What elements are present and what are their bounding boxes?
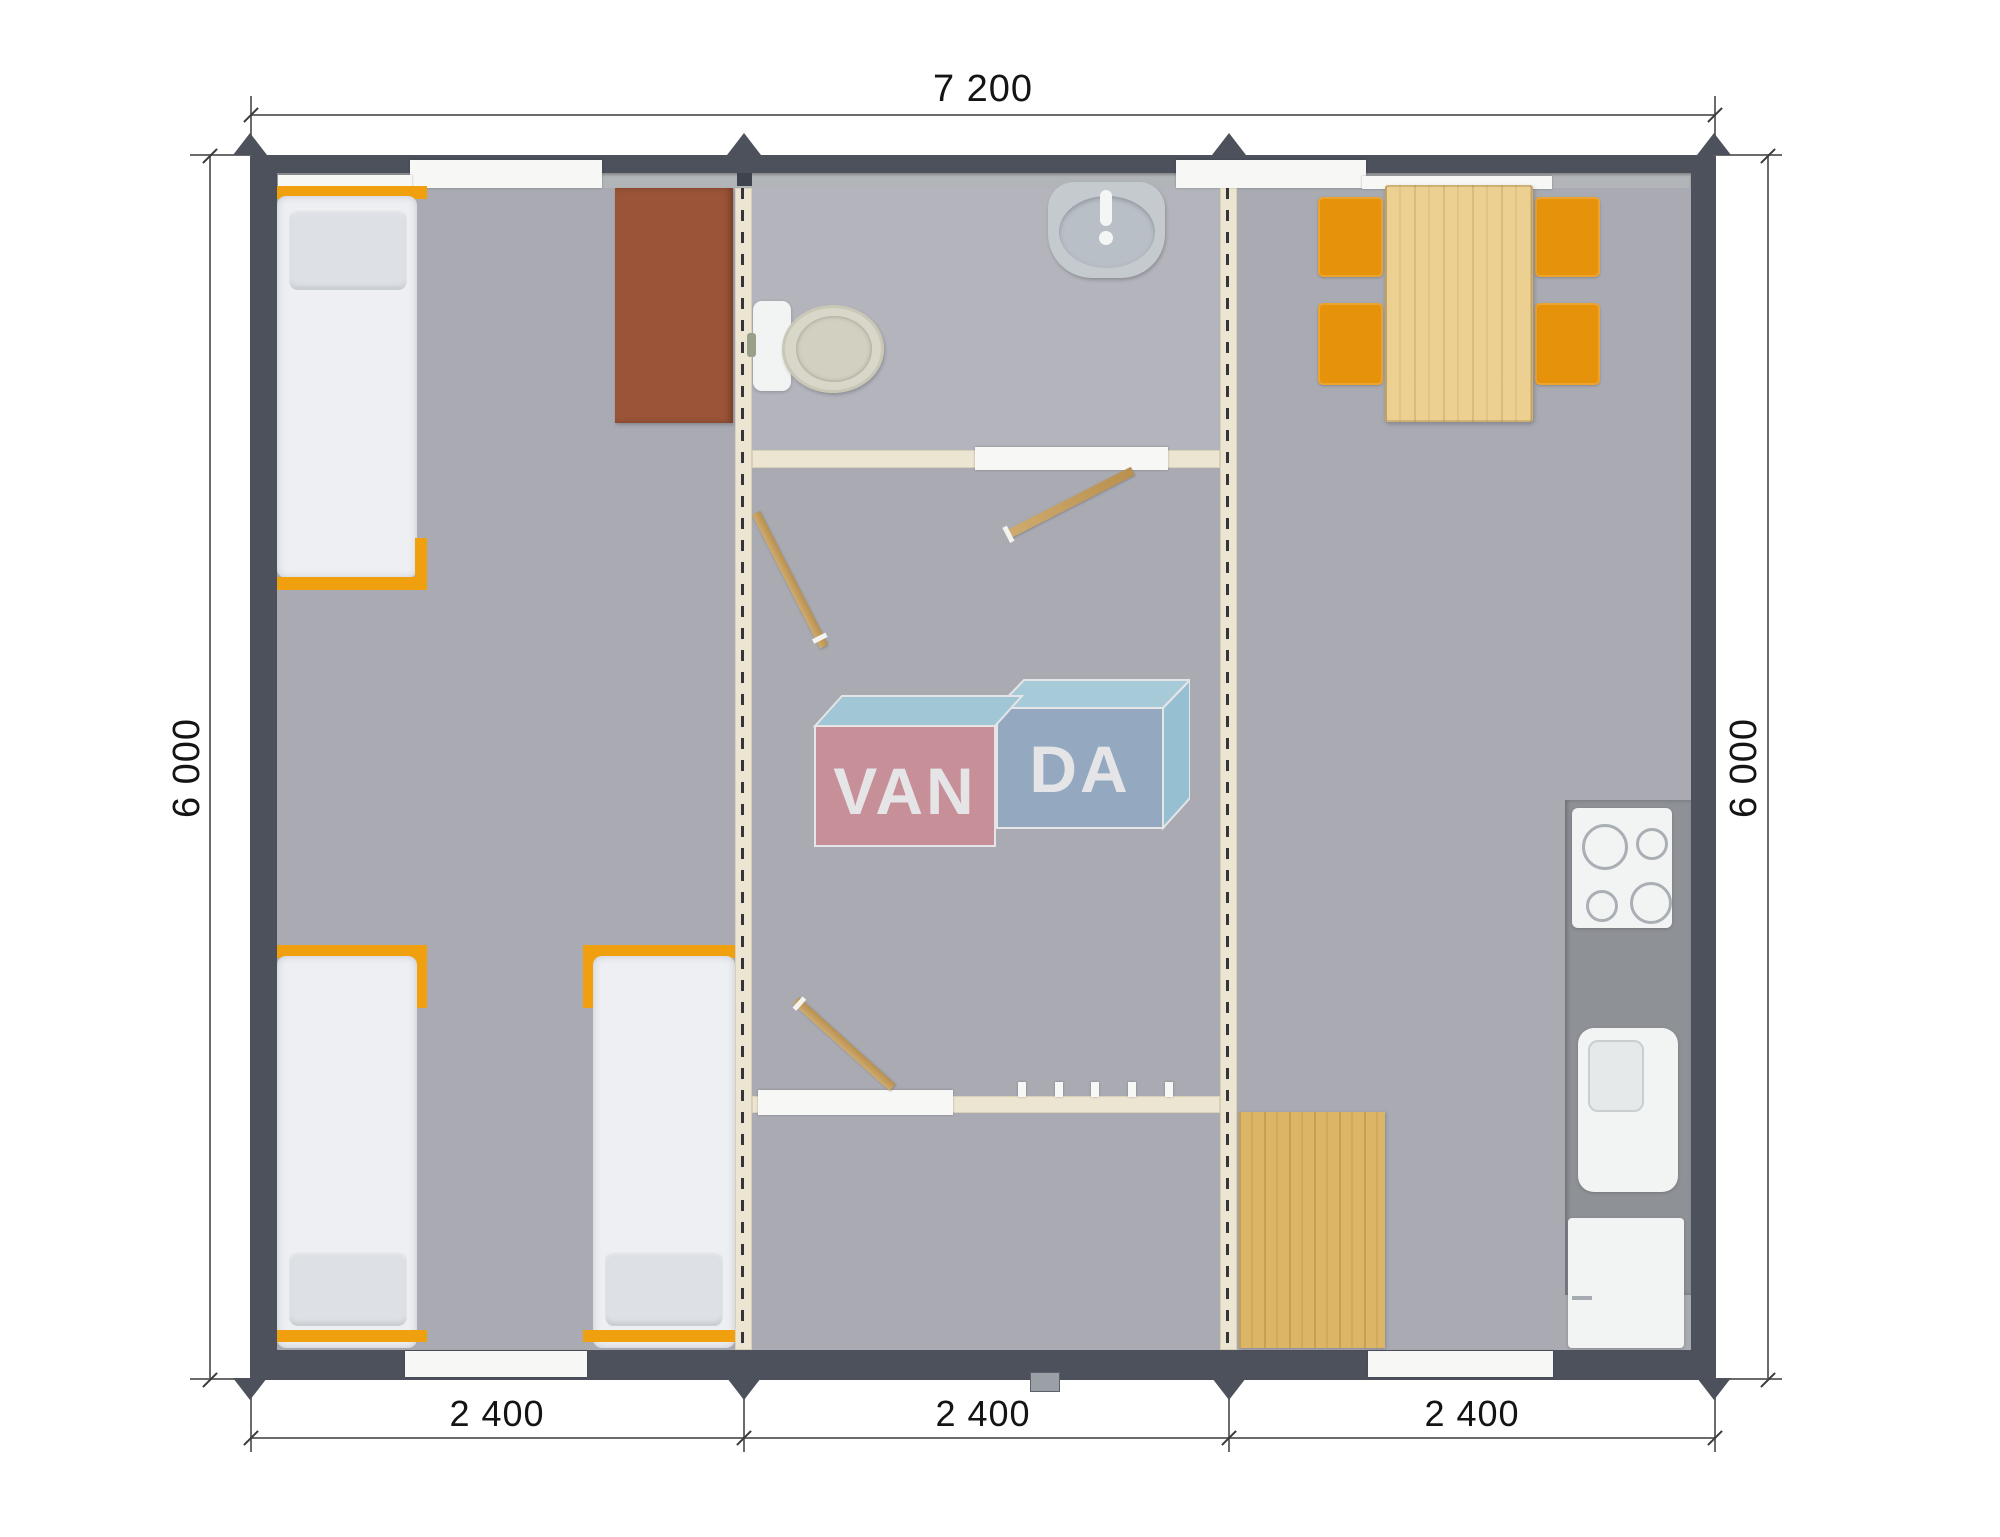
- burner: [1630, 882, 1672, 924]
- dimension-line-bottom: [250, 1437, 1716, 1439]
- vanda-logo: VAN DA: [800, 678, 1190, 873]
- coat-hook: [1128, 1082, 1136, 1097]
- door-handle: [812, 633, 828, 644]
- kitchen-sink-basin: [1588, 1040, 1644, 1112]
- dimension-label-module-2: 2 400: [883, 1396, 1083, 1432]
- joint-marker: [1212, 133, 1246, 155]
- dining-chair: [1535, 197, 1600, 277]
- dimension-label-module-1: 2 400: [397, 1396, 597, 1432]
- partition-2-door-frame: [758, 1090, 953, 1115]
- wood-floor-mat: [1239, 1112, 1385, 1348]
- dimension-line-left: [209, 154, 211, 1380]
- dimension-label-module-3: 2 400: [1372, 1396, 1572, 1432]
- module-joint-line-1: [741, 188, 744, 1350]
- joint-marker: [727, 1378, 761, 1400]
- joint-marker: [1697, 133, 1731, 155]
- fridge-handle: [1572, 1296, 1592, 1300]
- dimension-line-right: [1767, 154, 1769, 1380]
- window-bottom-left: [405, 1351, 587, 1377]
- bathroom-door-handle: [747, 333, 756, 357]
- bed-frame-side: [415, 538, 427, 580]
- joint-marker: [727, 133, 761, 155]
- toilet-seat: [796, 316, 872, 382]
- joint-marker: [1697, 1378, 1731, 1400]
- window-bottom-right: [1368, 1351, 1553, 1377]
- burner: [1582, 824, 1628, 870]
- joint-tab: [737, 173, 752, 186]
- vanda-logo-graphic: VAN DA: [800, 678, 1190, 873]
- dining-chair: [1318, 303, 1383, 385]
- dining-chair: [1318, 197, 1383, 277]
- bed-2-pillow: [289, 1250, 407, 1326]
- coat-hook: [1091, 1082, 1099, 1097]
- faucet: [1100, 190, 1112, 226]
- bed-frame-foot: [277, 577, 427, 590]
- logo-box-left-top-face: [815, 696, 1022, 726]
- desk: [615, 188, 733, 423]
- burner: [1586, 890, 1618, 922]
- joint-marker: [233, 1378, 267, 1400]
- burner: [1636, 828, 1668, 860]
- bed-frame-foot: [583, 1330, 735, 1342]
- cooktop: [1572, 808, 1672, 928]
- window-top-left: [410, 160, 602, 188]
- dining-chair: [1535, 303, 1600, 385]
- kitchen-sink: [1578, 1028, 1678, 1192]
- partition-1-door-frame: [975, 447, 1168, 470]
- dimension-label-right: 6 000: [1725, 688, 1769, 848]
- dimension-line-top: [250, 114, 1716, 116]
- bed-frame-foot: [277, 1330, 427, 1342]
- window-top-right: [1176, 160, 1366, 188]
- joint-marker: [233, 133, 267, 155]
- entry-threshold: [1030, 1372, 1060, 1392]
- coat-hook: [1018, 1082, 1026, 1097]
- dining-table: [1385, 185, 1533, 422]
- fridge: [1568, 1218, 1684, 1348]
- dimension-label-left: 6 000: [168, 688, 212, 848]
- coat-hook: [1165, 1082, 1173, 1097]
- dimension-label-top: 7 200: [833, 70, 1133, 108]
- logo-text-van: VAN: [833, 754, 976, 828]
- bed-1-pillow: [289, 208, 407, 290]
- coat-hook: [1055, 1082, 1063, 1097]
- floor-plan: 7 200 6 000 6 000 2 400 2 400 2 400: [0, 0, 2000, 1537]
- module-joint-line-2: [1226, 188, 1229, 1350]
- faucet-knob: [1099, 231, 1113, 245]
- logo-text-da: DA: [1029, 732, 1130, 806]
- logo-box-right-top-face: [997, 680, 1190, 708]
- joint-marker: [1212, 1378, 1246, 1400]
- bed-3-pillow: [605, 1250, 723, 1326]
